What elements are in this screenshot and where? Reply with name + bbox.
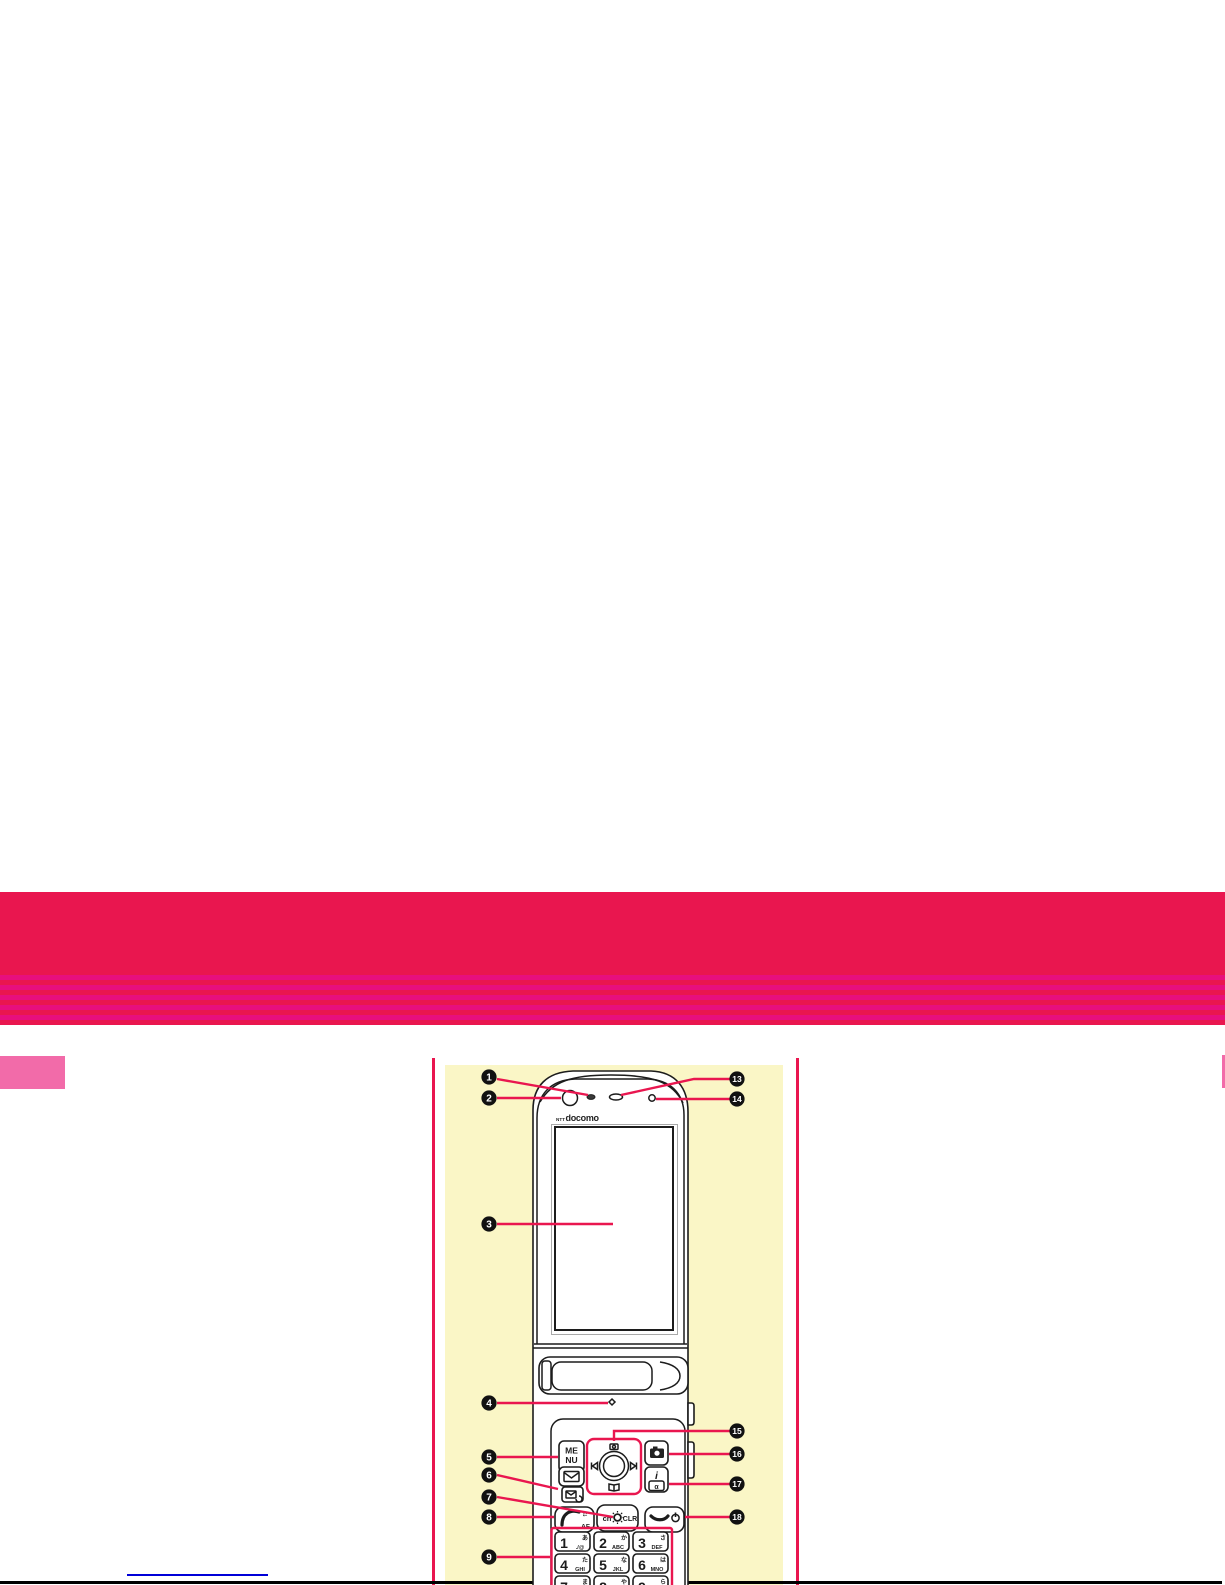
camera-key — [645, 1441, 668, 1465]
display-screen — [555, 1127, 673, 1330]
svg-text:6: 6 — [486, 1471, 492, 1482]
callout-8: 8 — [481, 1509, 496, 1524]
key-1: 1 ./@ あ — [555, 1532, 590, 1551]
svg-text:た: た — [582, 1557, 588, 1564]
key-2: 2 ABC か — [594, 1532, 629, 1551]
svg-text:14: 14 — [732, 1094, 742, 1104]
svg-text:あ: あ — [582, 1534, 588, 1542]
svg-text:7: 7 — [560, 1579, 568, 1585]
key-4: 4 GHI た — [555, 1554, 590, 1573]
imode-key: i α — [645, 1467, 668, 1492]
key-3: 3 DEF さ — [633, 1532, 668, 1551]
svg-text:9: 9 — [486, 1553, 492, 1564]
svg-text:1: 1 — [486, 1073, 492, 1084]
svg-text:4: 4 — [560, 1557, 568, 1573]
callout-7: 7 — [481, 1489, 496, 1504]
svg-text:ら: ら — [660, 1579, 666, 1585]
svg-text:NU: NU — [565, 1455, 577, 1465]
svg-text:16: 16 — [732, 1449, 742, 1459]
callout-15: 15 — [729, 1423, 744, 1438]
svg-text:さ: さ — [660, 1535, 666, 1542]
svg-text:は: は — [660, 1557, 666, 1564]
manual-page: { "page": {"width": 1225, "height": 1585… — [0, 0, 1225, 1585]
callout-18: 18 — [729, 1509, 744, 1524]
svg-text:8: 8 — [599, 1579, 607, 1585]
camera-icon — [653, 1447, 658, 1449]
svg-text:か: か — [621, 1534, 627, 1542]
callout-17: 17 — [729, 1476, 744, 1491]
callout-14: 14 — [729, 1091, 744, 1106]
key-9: 9 WXYZ ら — [633, 1576, 668, 1585]
svg-text:5: 5 — [599, 1557, 607, 1573]
svg-text:8: 8 — [486, 1513, 492, 1524]
callout-5: 5 — [481, 1449, 496, 1464]
numeric-keypad: 1 ./@ あ 2 ABC か 3 DEF さ 4 GHI た 5 JKL な … — [552, 1528, 673, 1585]
svg-text:な: な — [621, 1557, 627, 1564]
phone-illustration: NTTdocomo ME NU — [0, 0, 1225, 1585]
svg-text:6: 6 — [638, 1557, 646, 1573]
side-key-lower — [688, 1442, 694, 1478]
svg-text:3: 3 — [638, 1535, 646, 1551]
svg-text:MNO: MNO — [651, 1567, 665, 1573]
callout-1: 1 — [481, 1069, 496, 1084]
svg-text:ABC: ABC — [612, 1545, 624, 1551]
svg-text:ME: ME — [565, 1446, 578, 1456]
svg-text:7: 7 — [486, 1493, 492, 1504]
svg-text:9: 9 — [638, 1579, 646, 1585]
svg-text:1: 1 — [560, 1535, 568, 1551]
key-7: 7 PQRS ま — [555, 1576, 590, 1585]
callout-6: 6 — [481, 1467, 496, 1482]
callout-9: 9 — [481, 1549, 496, 1564]
svg-text:18: 18 — [732, 1512, 742, 1522]
svg-text:4: 4 — [486, 1399, 492, 1410]
key-6: 6 MNO は — [633, 1554, 668, 1573]
svg-text:DEF: DEF — [652, 1545, 664, 1551]
svg-text:2: 2 — [486, 1094, 492, 1105]
svg-text:13: 13 — [732, 1074, 742, 1084]
svg-text:15: 15 — [732, 1426, 742, 1436]
callout-3: 3 — [481, 1216, 496, 1231]
callout-13: 13 — [729, 1071, 744, 1086]
svg-text:./@: ./@ — [576, 1545, 585, 1551]
svg-text:や: や — [621, 1578, 627, 1585]
svg-text:JKL: JKL — [613, 1567, 624, 1573]
callout-4: 4 — [481, 1395, 496, 1410]
key-5: 5 JKL な — [594, 1554, 629, 1573]
svg-text:GHI: GHI — [575, 1567, 585, 1573]
svg-text:ま: ま — [582, 1578, 588, 1585]
infrared-port-icon — [587, 1095, 595, 1100]
svg-text:17: 17 — [732, 1479, 742, 1489]
svg-text:5: 5 — [486, 1453, 492, 1464]
key-8: 8 TUV や — [594, 1576, 629, 1585]
svg-text:3: 3 — [486, 1220, 492, 1231]
side-key-upper — [688, 1403, 694, 1425]
clr-label: CLR — [623, 1516, 637, 1523]
iappli-label: α — [654, 1484, 659, 1491]
svg-text:2: 2 — [599, 1535, 607, 1551]
callout-16: 16 — [729, 1446, 744, 1461]
callout-2: 2 — [481, 1090, 496, 1105]
